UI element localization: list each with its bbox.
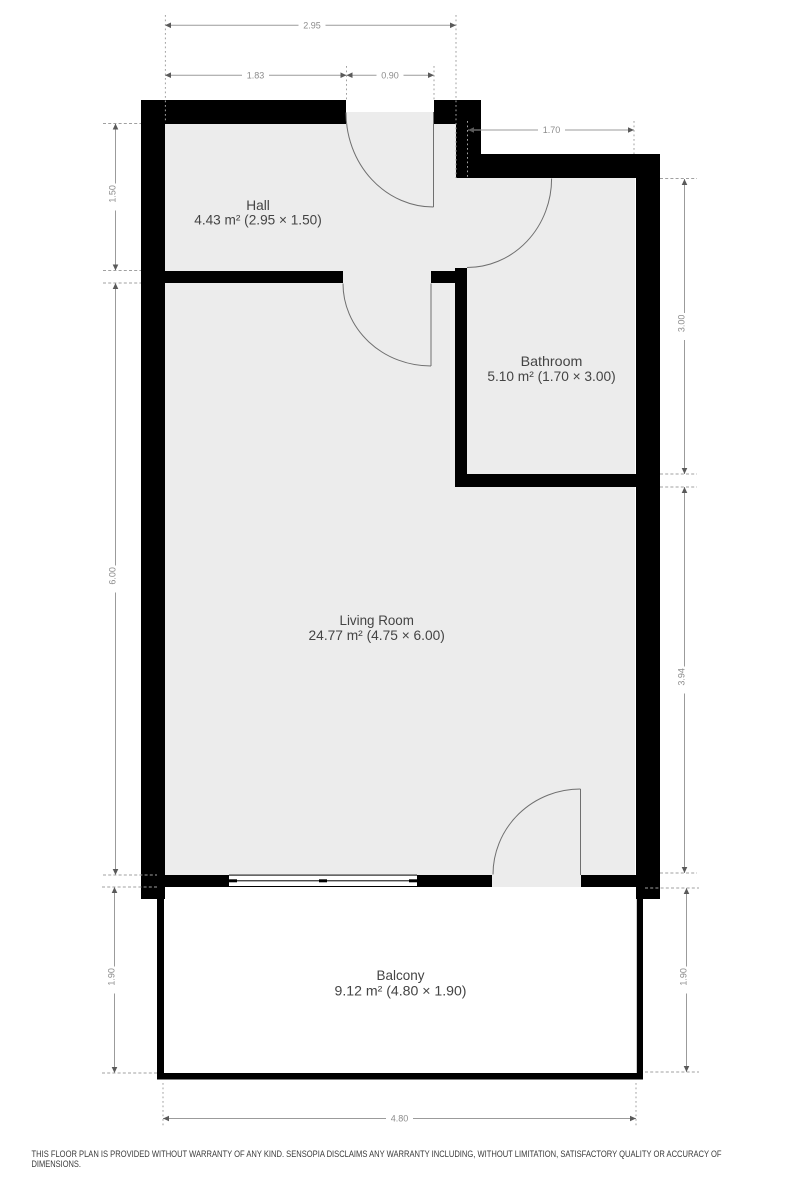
svg-text:3.94: 3.94 <box>677 668 687 686</box>
svg-text:Hall: Hall <box>246 198 270 213</box>
svg-text:Bathroom: Bathroom <box>521 354 583 369</box>
svg-text:1.90: 1.90 <box>107 968 117 986</box>
svg-text:24.77 m² (4.75 × 6.00): 24.77 m² (4.75 × 6.00) <box>309 628 445 643</box>
svg-text:4.43 m² (2.95 × 1.50): 4.43 m² (2.95 × 1.50) <box>194 213 322 228</box>
svg-text:1.70: 1.70 <box>543 125 561 135</box>
svg-text:0.90: 0.90 <box>381 70 399 80</box>
svg-text:1.83: 1.83 <box>247 70 265 80</box>
svg-text:4.80: 4.80 <box>391 1114 409 1124</box>
svg-text:3.00: 3.00 <box>677 315 687 333</box>
svg-text:DIMENSIONS.: DIMENSIONS. <box>32 1159 82 1169</box>
svg-text:Balcony: Balcony <box>377 968 425 983</box>
svg-text:Living Room: Living Room <box>340 613 414 628</box>
svg-text:1.90: 1.90 <box>679 968 689 986</box>
svg-text:2.95: 2.95 <box>303 21 321 31</box>
svg-text:9.12 m² (4.80 × 1.90): 9.12 m² (4.80 × 1.90) <box>335 984 467 999</box>
svg-text:5.10 m² (1.70 × 3.00): 5.10 m² (1.70 × 3.00) <box>487 369 615 384</box>
svg-text:1.50: 1.50 <box>108 185 118 203</box>
svg-text:6.00: 6.00 <box>108 567 118 585</box>
svg-text:THIS FLOOR PLAN IS PROVIDED WI: THIS FLOOR PLAN IS PROVIDED WITHOUT WARR… <box>32 1149 722 1159</box>
